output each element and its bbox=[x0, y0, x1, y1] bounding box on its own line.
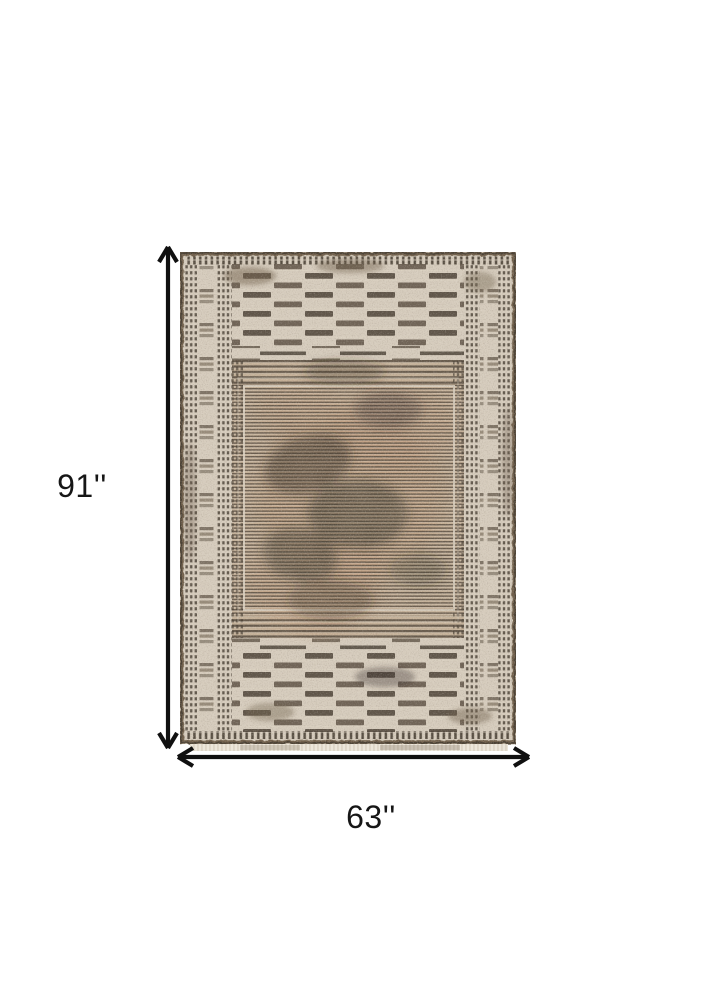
rug-grain bbox=[180, 252, 516, 744]
product-dimension-diagram: 91'' 63'' bbox=[0, 0, 701, 1000]
width-dimension-label: 63'' bbox=[323, 800, 419, 834]
rug-fringe bbox=[190, 744, 508, 751]
height-dimension-label: 91'' bbox=[34, 469, 130, 503]
rug-graphic bbox=[180, 252, 516, 752]
rug-product-image bbox=[180, 252, 516, 752]
height-dimension-arrow bbox=[159, 247, 177, 748]
